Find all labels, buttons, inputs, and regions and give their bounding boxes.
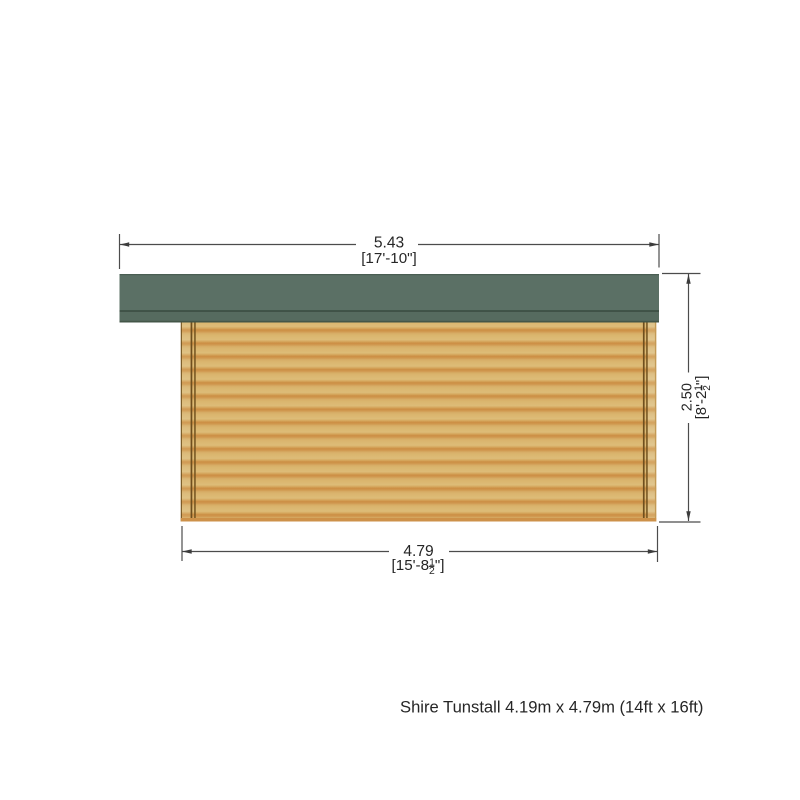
svg-text:[8'-212"]: [8'-212"] [693,376,713,420]
svg-text:5.43: 5.43 [374,235,404,252]
svg-text:[17'-10"]: [17'-10"] [361,250,417,267]
svg-text:Shire Tunstall 4.19m x 4.79m (: Shire Tunstall 4.19m x 4.79m (14ft x 16f… [400,698,703,717]
svg-text:[15'-812"]: [15'-812"] [392,557,445,577]
